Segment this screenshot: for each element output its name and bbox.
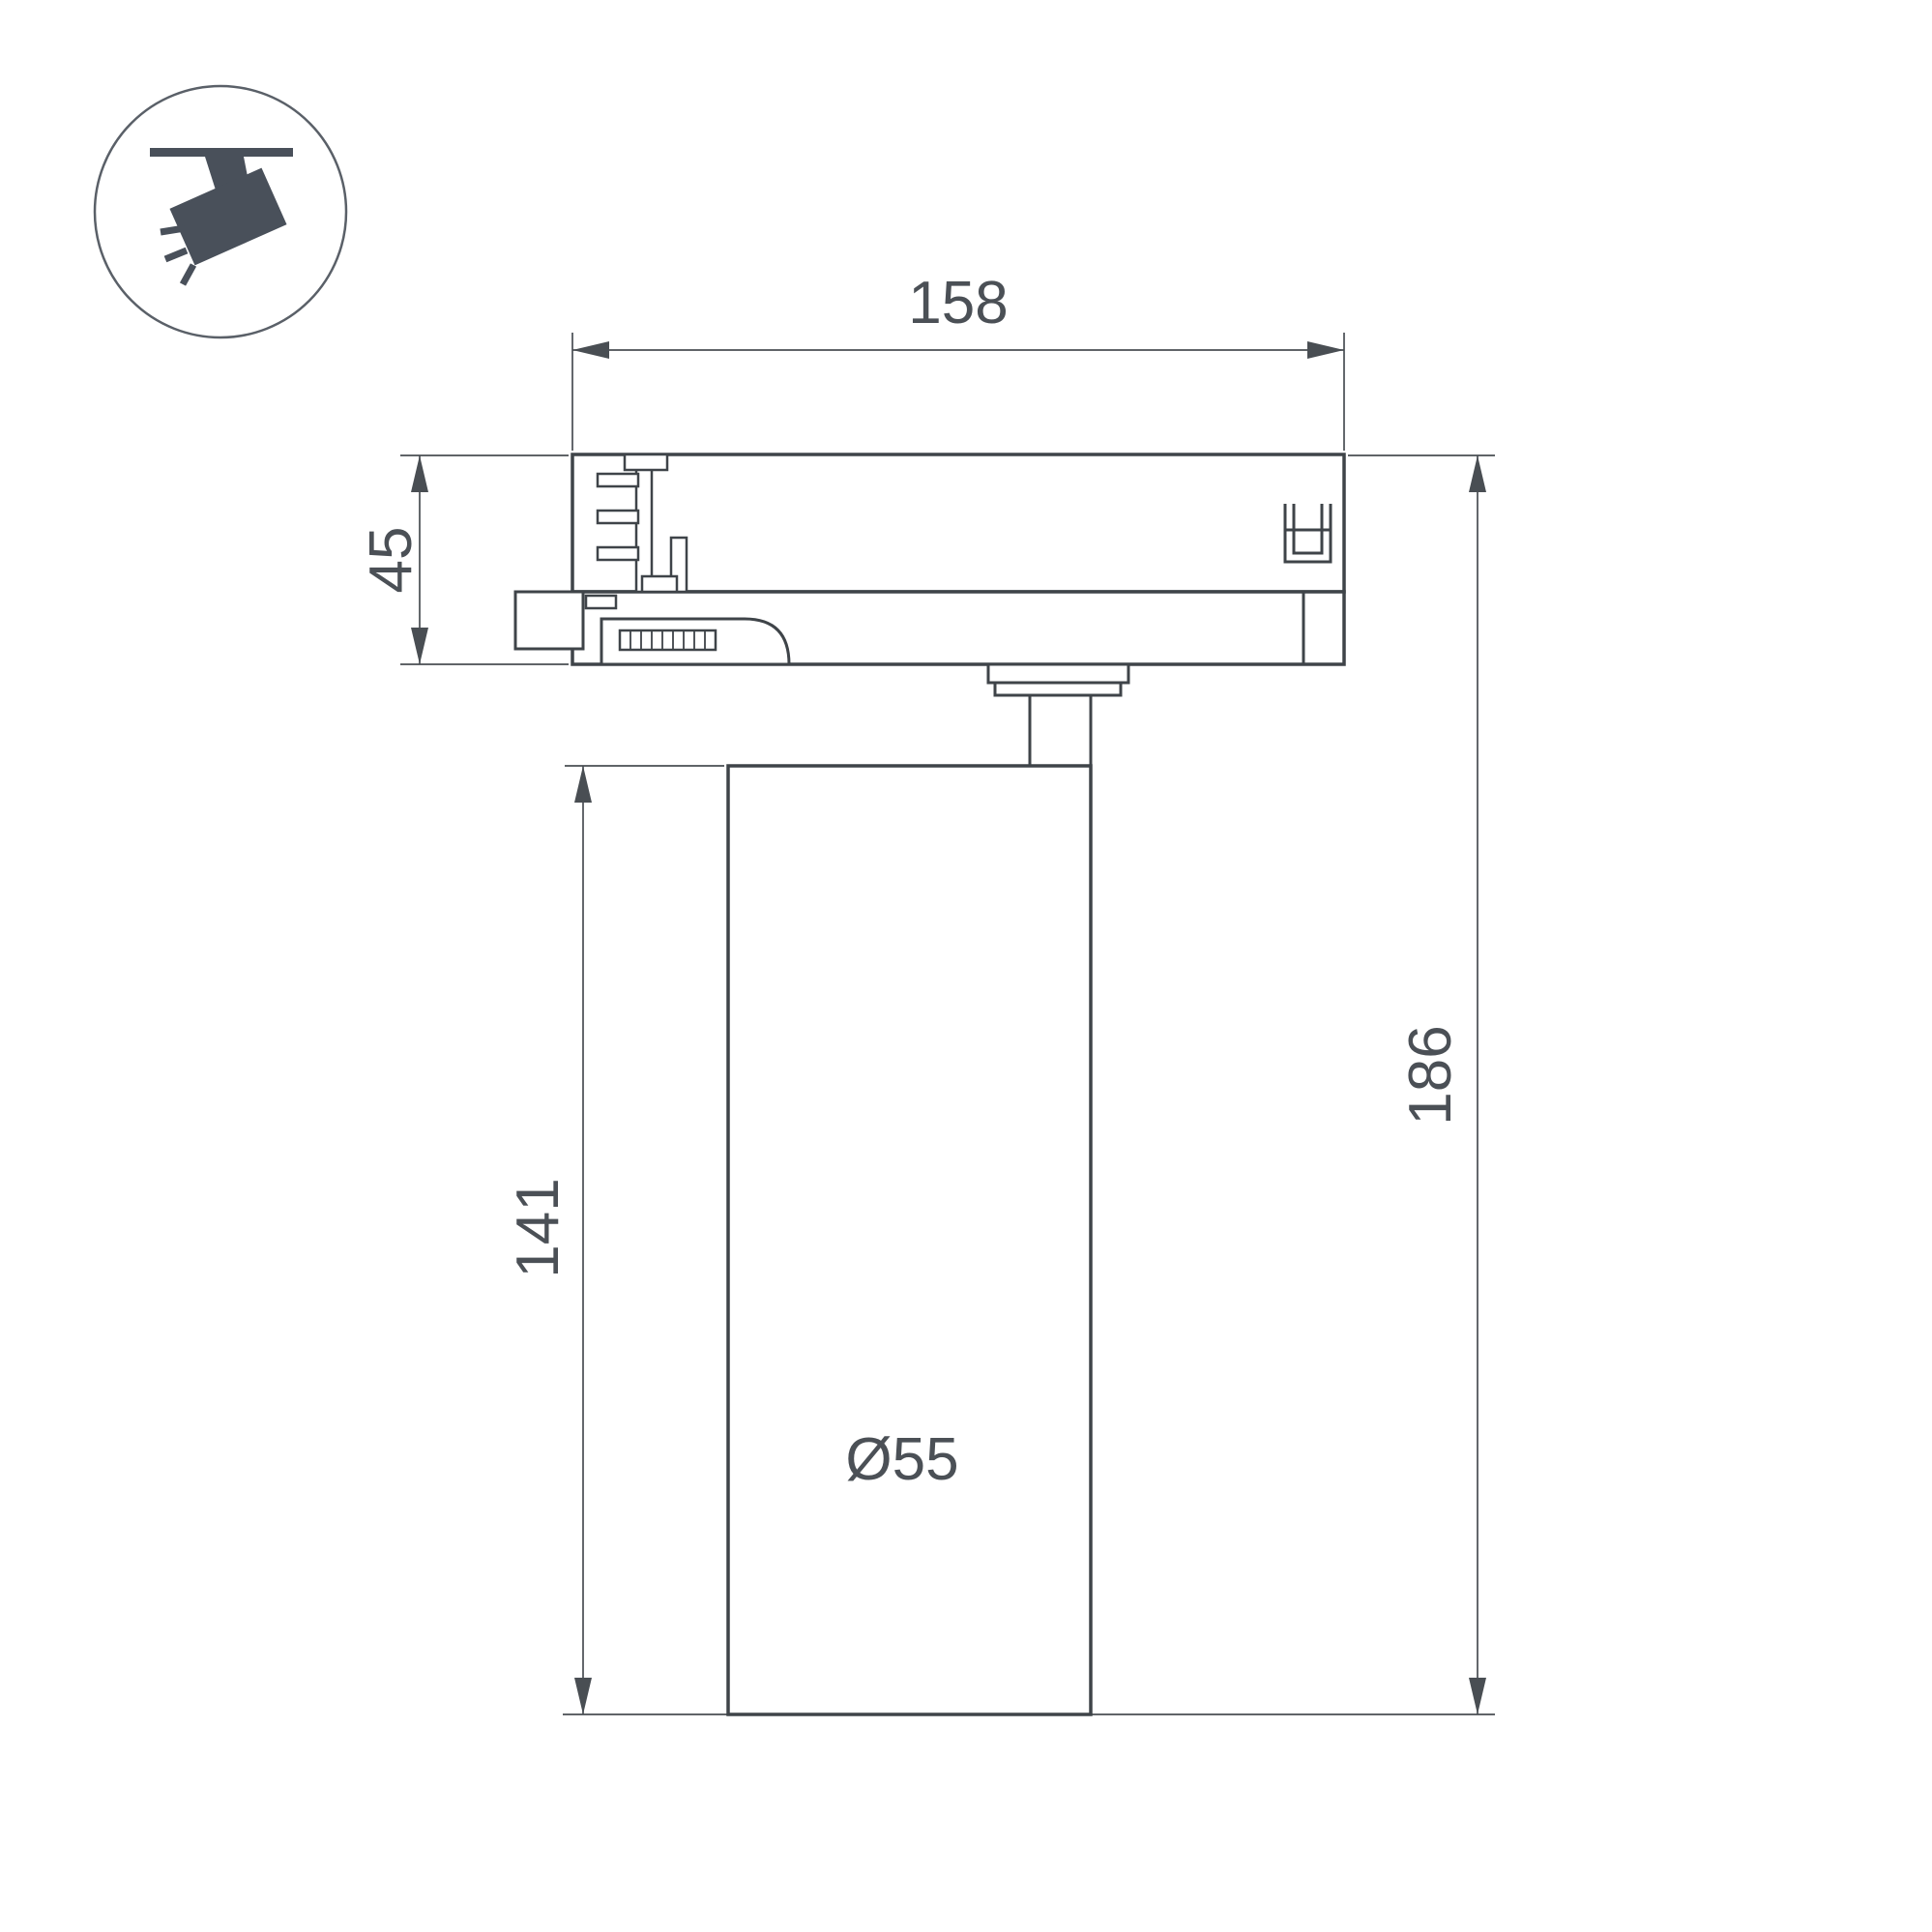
lamp-body-cylinder xyxy=(728,766,1091,1714)
contact-prong-1 xyxy=(598,474,638,486)
lock-knob xyxy=(515,592,583,649)
track-light-dimension-drawing: 158 45 141 186 Ø55 xyxy=(0,0,1932,1932)
product-type-badge xyxy=(95,86,346,337)
contact-foot xyxy=(642,576,677,592)
arrow-158-left xyxy=(572,341,609,359)
lock-notch xyxy=(586,596,616,608)
arrow-45-up xyxy=(411,455,428,492)
contact-prong-3 xyxy=(598,547,638,560)
arrow-186-down xyxy=(1469,1678,1486,1714)
arrow-141-down xyxy=(574,1678,592,1714)
arrow-45-down xyxy=(411,628,428,664)
contact-prong-2 xyxy=(598,511,638,523)
technical-drawing-page: 158 45 141 186 Ø55 xyxy=(0,0,1932,1932)
arrow-186-up xyxy=(1469,455,1486,492)
dimension-45-label: 45 xyxy=(358,527,424,594)
neck-step-2 xyxy=(995,683,1121,695)
dimension-158-label: 158 xyxy=(908,270,1008,337)
neck-step-1 xyxy=(988,664,1128,683)
arrow-141-up xyxy=(574,766,592,803)
track-adapter xyxy=(515,454,1344,664)
pivot-neck xyxy=(988,664,1128,766)
dimension-186-label: 186 xyxy=(1397,1025,1464,1125)
contact-top-cap xyxy=(625,454,667,470)
dimension-141-label: 141 xyxy=(505,1178,571,1277)
neck-stem xyxy=(1030,695,1091,766)
arrow-158-right xyxy=(1307,341,1344,359)
grip-hatch xyxy=(620,630,716,650)
ceiling-track-icon xyxy=(150,148,293,157)
dimension-diameter-label: Ø55 xyxy=(845,1426,958,1493)
adapter-upper-box xyxy=(572,454,1344,592)
